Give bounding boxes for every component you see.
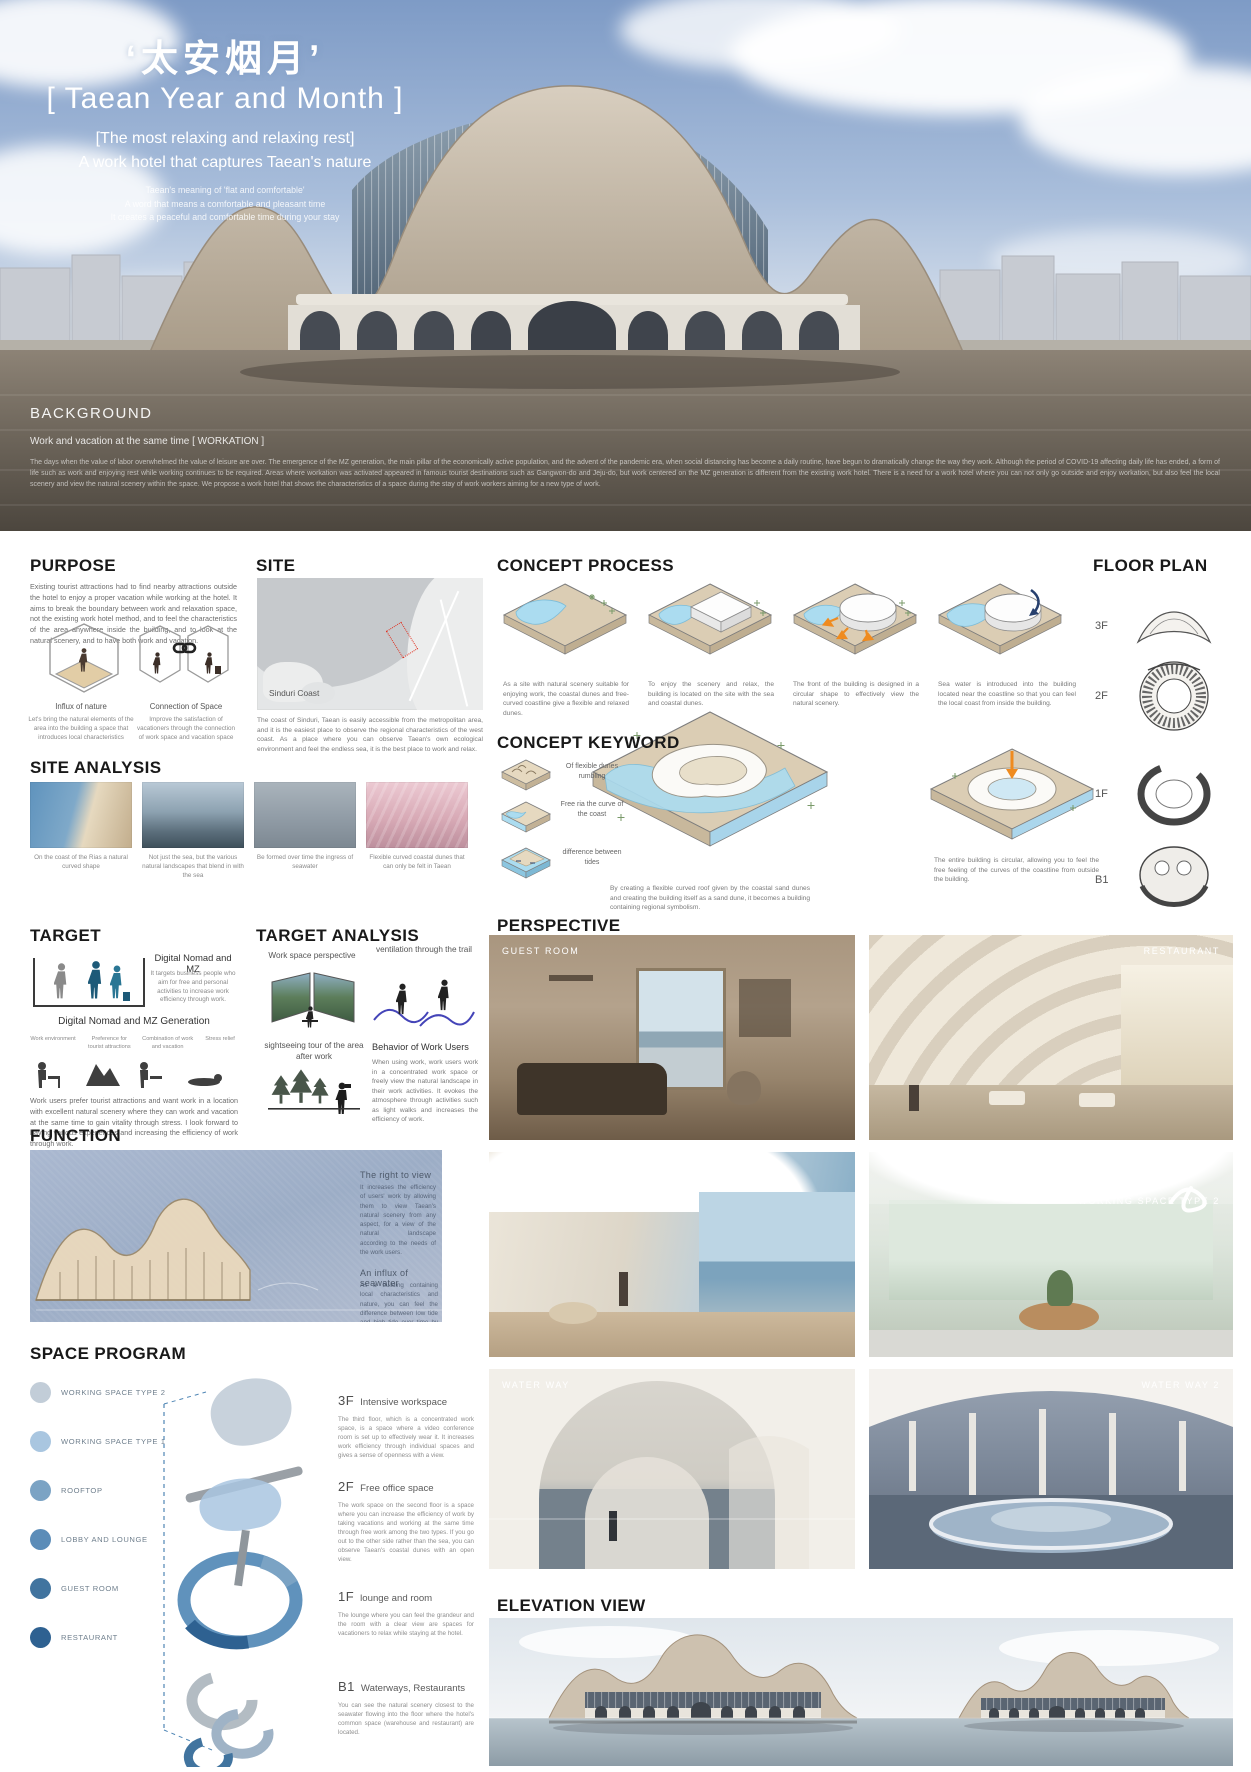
legend-label-rooftop: ROOFTOP <box>61 1486 103 1495</box>
background-subheading: Work and vacation at the same time [ WOR… <box>30 436 1220 447</box>
concept-step-3-caption: The front of the building is designed in… <box>793 680 919 709</box>
water-way-2-structure <box>869 1369 1233 1569</box>
perspective-restaurant: RESTAURANT <box>869 935 1233 1140</box>
target-trait-4: Stress relief <box>200 1036 240 1052</box>
water-way-arches <box>489 1369 855 1569</box>
purpose-heading: PURPOSE <box>30 556 116 576</box>
legend-item-lobby: LOBBY AND LOUNGE <box>30 1529 148 1550</box>
restaurant-windows <box>1121 965 1233 1085</box>
ws2-label: WORKING SPACE TYPE 2 <box>1078 1196 1220 1206</box>
function-callout-2-body: As a building containing local character… <box>360 1281 438 1322</box>
background-heading: BACKGROUND <box>30 405 1220 422</box>
legend-label-lobby: LOBBY AND LOUNGE <box>61 1535 148 1544</box>
floor-block-1f: 1Flounge and room The lounge where you c… <box>338 1588 474 1639</box>
background-body: The days when the value of labor overwhe… <box>30 457 1220 491</box>
site-analysis-photo-coast <box>30 782 132 848</box>
legend-dot-ws2 <box>30 1382 51 1403</box>
function-callout-1-title: The right to view <box>360 1170 436 1180</box>
influx-of-nature-icon <box>46 622 122 696</box>
behavior-title: Behavior of Work Users <box>372 1042 480 1052</box>
water-way-label: WATER WAY <box>502 1380 570 1390</box>
concept-process-heading: CONCEPT PROCESS <box>497 556 674 576</box>
guest-room-bed <box>517 1063 667 1115</box>
sightseeing-label: sightseeing tour of the area after work <box>260 1040 368 1062</box>
concept-stage-2-caption: The entire building is circular, allowin… <box>934 856 1099 885</box>
purpose-item-2-title: Connection of Space <box>134 702 238 713</box>
guest-room-shelf <box>549 975 593 981</box>
target-activity-silhouettes <box>28 1052 240 1092</box>
elevation-illustration <box>489 1618 1233 1766</box>
ws2-floor <box>869 1330 1233 1357</box>
concept-stage-2-diagram <box>925 745 1100 849</box>
floor-b1-title: Waterways, Restaurants <box>361 1683 465 1694</box>
tagline-1: Taean's meaning of 'flat and comfortable… <box>20 184 430 198</box>
legend-item-rooftop: ROOFTOP <box>30 1480 103 1501</box>
floor-block-b1: B1Waterways, Restaurants You can see the… <box>338 1678 474 1738</box>
perspective-working-space-2: WORKING SPACE TYPE 2 <box>869 1152 1233 1357</box>
legend-item-restaurant: RESTAURANT <box>30 1627 118 1648</box>
site-heading: SITE <box>256 556 295 576</box>
restaurant-diner-figure <box>909 1085 919 1111</box>
purpose-item-1-title: Influx of nature <box>26 702 136 713</box>
floor-plan-level-2f: 2F <box>1095 690 1108 702</box>
floor-b1-level: B1 <box>338 1679 355 1694</box>
elevation-heading: ELEVATION VIEW <box>497 1596 646 1616</box>
concept-step-4-diagram <box>935 578 1065 664</box>
target-traits-row: Work environment Preference for tourist … <box>28 1036 240 1052</box>
tagline-3: It creates a peaceful and comfortable ti… <box>20 211 430 225</box>
legend-label-guestroom: GUEST ROOM <box>61 1584 119 1593</box>
legend-dot-restaurant <box>30 1627 51 1648</box>
floor-2f-level: 2F <box>338 1479 354 1494</box>
space-program-axon-diagram <box>142 1362 334 1767</box>
function-heading: FUNCTION <box>30 1126 121 1146</box>
site-map: Sinduri Coast <box>257 578 483 710</box>
floor-plan-b1-diagram <box>1128 842 1220 908</box>
floor-1f-title: lounge and room <box>360 1593 432 1604</box>
workspace-perspective-label: Work space perspective <box>260 950 364 961</box>
connection-of-space-icon <box>136 622 232 696</box>
function-sketch-panel: The right to view It increases the effic… <box>30 1150 442 1322</box>
title-chinese: ‘太安烟月’ <box>20 28 430 82</box>
tagline-2: A word that means a comfortable and plea… <box>20 198 430 212</box>
elevation-image <box>489 1618 1233 1766</box>
floor-block-2f: 2FFree office space The work space on th… <box>338 1478 474 1565</box>
keyword-ria-coast-icon <box>500 800 552 836</box>
keyword-tides-label: difference between tides <box>556 848 628 868</box>
concept-step-2-caption: To enjoy the scenery and relax, the buil… <box>648 680 774 709</box>
perspective-water-way-2: WATER WAY 2 <box>869 1369 1233 1569</box>
purpose-item-2-desc: Improve the satisfaction of vacationers … <box>134 716 238 742</box>
concept-step-2-diagram <box>645 578 775 664</box>
floor-3f-body: The third floor, which is a concentrated… <box>338 1416 474 1461</box>
ws1-wood-floor <box>489 1312 855 1357</box>
guest-room-chair <box>727 1071 761 1105</box>
floor-2f-title: Free office space <box>360 1483 433 1494</box>
function-callout-1-body: It increases the efficiency of users' wo… <box>360 1183 436 1257</box>
arched-base <box>288 301 860 353</box>
site-analysis-heading: SITE ANALYSIS <box>30 758 161 778</box>
site-analysis-caption-1: On the coast of the Rias a natural curve… <box>30 854 132 872</box>
site-analysis-photo-seawater <box>254 782 356 848</box>
legend-dot-ws1 <box>30 1431 51 1452</box>
ws2-tree <box>1047 1270 1073 1306</box>
target-group-desc: It targets business people who aim for f… <box>148 970 238 1005</box>
ws2-planter <box>1019 1302 1099 1332</box>
keyword-tides-icon <box>500 846 552 882</box>
perspective-working-space-1: WORKING SPACE TYPE 1 <box>489 1152 855 1357</box>
legend-dot-guestroom <box>30 1578 51 1599</box>
target-heading: TARGET <box>30 926 101 946</box>
floor-3f-level: 3F <box>338 1393 354 1408</box>
ws1-lounge-seat <box>549 1302 597 1324</box>
floor-plan-level-1f: 1F <box>1095 788 1108 800</box>
floor-1f-body: The lounge where you can feel the grande… <box>338 1612 474 1639</box>
keyword-dunes-icon <box>500 758 552 794</box>
guest-room-label: GUEST ROOM <box>502 946 579 956</box>
water-way-2-label: WATER WAY 2 <box>1142 1380 1220 1390</box>
building-reflection <box>240 355 900 389</box>
trail-ventilation-icon <box>372 974 476 1032</box>
perspective-water-way: WATER WAY <box>489 1369 855 1569</box>
floor-3f-title: Intensive workspace <box>360 1397 447 1408</box>
floor-block-3f: 3FIntensive workspace The third floor, w… <box>338 1392 474 1461</box>
subtitle-1: [The most relaxing and relaxing rest] <box>20 130 430 148</box>
target-people-illustration <box>30 952 148 1012</box>
site-analysis-caption-3: Be formed over time the ingress of seawa… <box>254 854 356 872</box>
target-trait-3: Combination of work and vacation <box>141 1036 195 1052</box>
floor-plan-level-b1: B1 <box>1095 874 1108 886</box>
restaurant-table-2 <box>1079 1093 1115 1107</box>
concept-step-1-diagram <box>500 578 630 664</box>
concept-keyword-heading: CONCEPT KEYWORD <box>497 733 680 753</box>
legend-dot-lobby <box>30 1529 51 1550</box>
site-analysis-caption-2: Not just the sea, but the various natura… <box>142 854 244 880</box>
floor-b1-body: You can see the natural scenery closest … <box>338 1702 474 1738</box>
link-icon <box>174 644 195 652</box>
target-trait-1: Work environment <box>28 1036 78 1052</box>
concept-step-3-diagram <box>790 578 920 664</box>
title-block: ‘太安烟月’ [ Taean Year and Month ] [The mos… <box>20 28 430 225</box>
legend-dot-rooftop <box>30 1480 51 1501</box>
keyword-dunes-label: Of flexible dunes rumbling <box>556 762 628 782</box>
floor-plan-2f-diagram <box>1128 652 1220 740</box>
space-program-heading: SPACE PROGRAM <box>30 1344 186 1364</box>
purpose-item-1-desc: Let's bring the natural elements of the … <box>26 716 136 742</box>
legend-item-guestroom: GUEST ROOM <box>30 1578 119 1599</box>
ws1-sea-glass-wall <box>699 1192 855 1312</box>
floor-plan-level-3f: 3F <box>1095 620 1108 632</box>
title-english: [ Taean Year and Month ] <box>20 82 430 116</box>
site-analysis-photo-dunes <box>366 782 468 848</box>
site-map-label: Sinduri Coast <box>269 688 319 698</box>
subtitle-2: A work hotel that captures Taean's natur… <box>20 154 430 172</box>
keyword-ria-coast-label: Free ria the curve of the coast <box>556 800 628 820</box>
trail-ventilation-label: ventilation through the trail <box>374 944 474 955</box>
floor-plan-heading: FLOOR PLAN <box>1093 556 1208 576</box>
perspective-heading: PERSPECTIVE <box>497 916 620 936</box>
hero-render: ‘太安烟月’ [ Taean Year and Month ] [The mos… <box>0 0 1251 531</box>
floor-1f-level: 1F <box>338 1589 354 1604</box>
guest-room-bookcase <box>739 979 791 1037</box>
background-section: BACKGROUND Work and vacation at the same… <box>30 405 1220 491</box>
target-analysis-heading: TARGET ANALYSIS <box>256 926 419 946</box>
legend-label-restaurant: RESTAURANT <box>61 1633 118 1642</box>
restaurant-label: RESTAURANT <box>1144 946 1220 956</box>
presentation-board: ‘太安烟月’ [ Taean Year and Month ] [The mos… <box>0 0 1251 1772</box>
ws1-person-figure <box>619 1272 628 1306</box>
site-analysis-caption-4: Flexible curved coastal dunes that can o… <box>366 854 468 872</box>
workspace-perspective-icon <box>266 968 360 1032</box>
perspective-guest-room: GUEST ROOM <box>489 935 855 1140</box>
site-analysis-photo-island <box>142 782 244 848</box>
sightseeing-icon <box>268 1068 360 1122</box>
behavior-body: When using work, work users work in a co… <box>372 1058 478 1125</box>
target-trait-2: Preference for tourist attractions <box>83 1036 135 1052</box>
target-generation-title: Digital Nomad and MZ Generation <box>30 1016 238 1027</box>
restaurant-floor <box>869 1085 1233 1140</box>
restaurant-table <box>989 1091 1025 1105</box>
floor-2f-body: The work space on the second floor is a … <box>338 1502 474 1565</box>
floor-plan-1f-diagram <box>1128 760 1220 828</box>
site-body: The coast of Sinduri, Taean is easily ac… <box>257 716 483 754</box>
floor-plan-3f-diagram <box>1128 588 1220 650</box>
ws1-label: WORKING SPACE TYPE 1 <box>502 1163 644 1173</box>
concept-step-4-caption: Sea water is introduced into the buildin… <box>938 680 1076 709</box>
concept-stage-1-caption: By creating a flexible curved roof given… <box>610 884 810 913</box>
